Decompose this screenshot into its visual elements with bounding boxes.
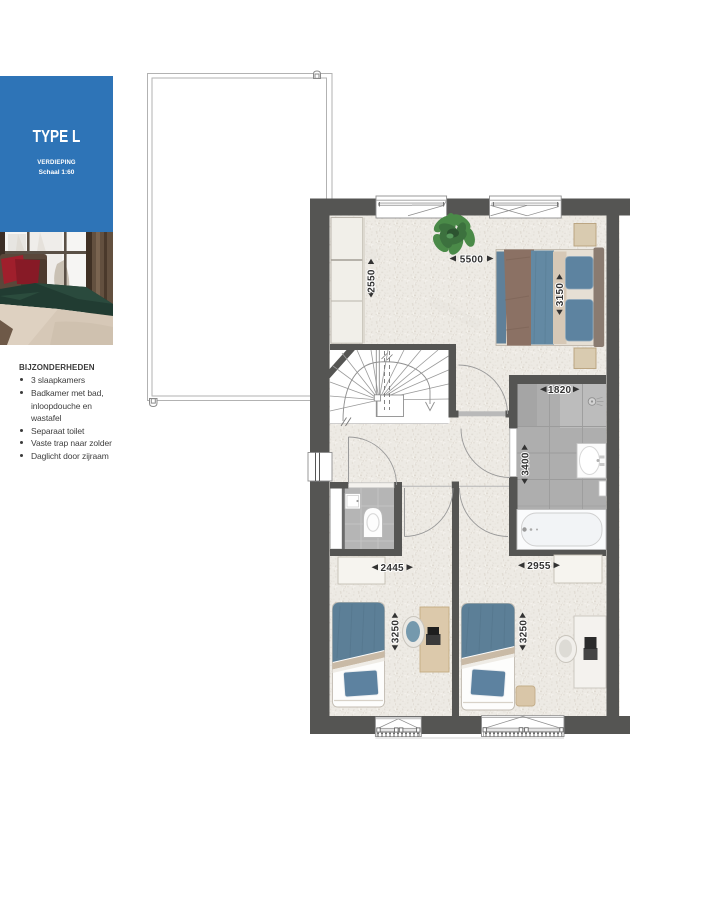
svg-text:3150: 3150 [555,283,566,307]
svg-text:2550: 2550 [367,269,378,293]
svg-text:1820: 1820 [548,385,572,396]
svg-text:3250: 3250 [391,620,402,644]
svg-text:3400: 3400 [520,452,531,476]
svg-text:5500: 5500 [460,254,484,265]
svg-text:2955: 2955 [527,561,551,572]
svg-text:2445: 2445 [380,563,404,574]
svg-text:3250: 3250 [518,620,529,644]
